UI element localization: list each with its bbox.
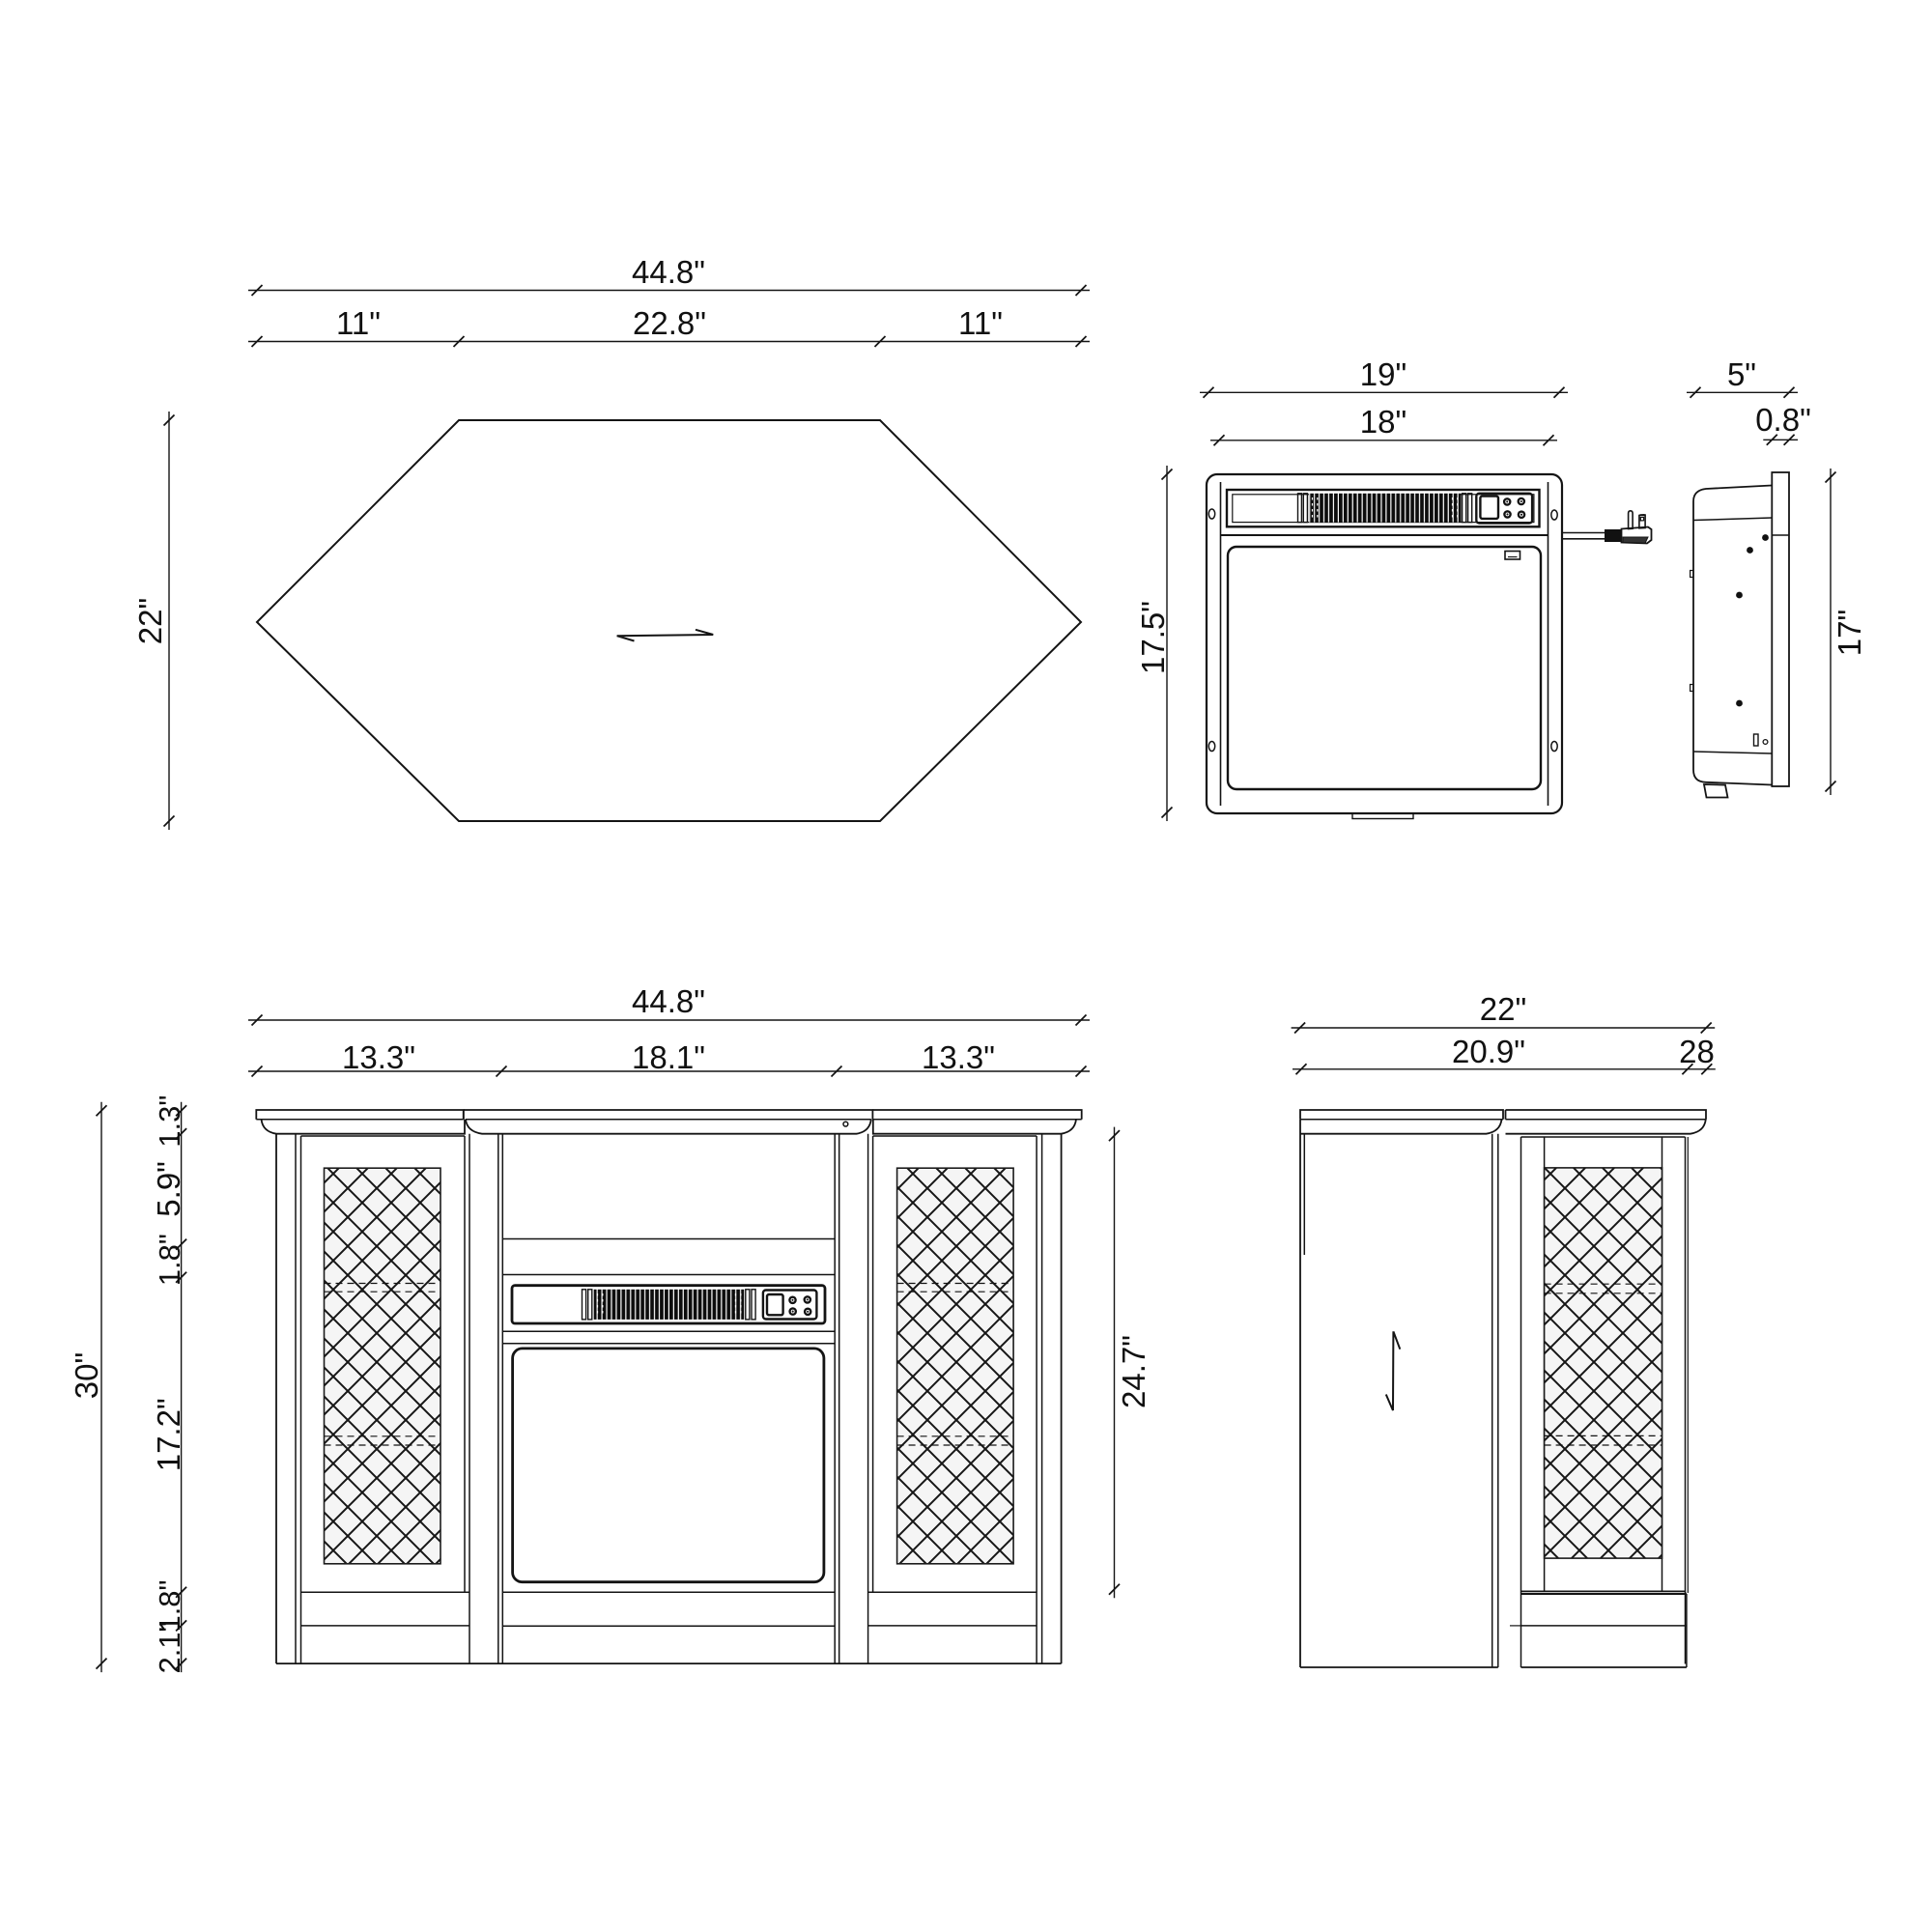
svg-text:22": 22"	[132, 598, 168, 644]
svg-text:18": 18"	[1360, 404, 1406, 440]
svg-text:5": 5"	[1727, 356, 1756, 392]
svg-text:2.1": 2.1"	[153, 1621, 186, 1673]
svg-text:1.3": 1.3"	[153, 1095, 186, 1148]
svg-text:1.8": 1.8"	[153, 1234, 186, 1286]
svg-text:13.3": 13.3"	[922, 1039, 995, 1075]
svg-text:17": 17"	[1832, 610, 1867, 656]
svg-text:13.3": 13.3"	[342, 1039, 415, 1075]
svg-text:17.2": 17.2"	[151, 1398, 186, 1471]
svg-text:20.9": 20.9"	[1452, 1034, 1525, 1069]
svg-text:11": 11"	[336, 305, 381, 341]
svg-text:44.8": 44.8"	[632, 254, 705, 290]
svg-text:18.1": 18.1"	[632, 1039, 705, 1075]
svg-text:24.7": 24.7"	[1116, 1335, 1151, 1408]
svg-text:5.9": 5.9"	[151, 1161, 186, 1217]
svg-text:30": 30"	[69, 1352, 104, 1399]
svg-text:17.5": 17.5"	[1135, 601, 1171, 674]
svg-text:22.8": 22.8"	[633, 305, 706, 341]
svg-text:19": 19"	[1360, 356, 1406, 392]
svg-text:11": 11"	[958, 305, 1003, 341]
svg-text:44.8": 44.8"	[632, 983, 705, 1019]
svg-text:0.8": 0.8"	[1755, 402, 1811, 438]
svg-text:22": 22"	[1480, 991, 1526, 1027]
svg-text:28: 28	[1679, 1034, 1715, 1069]
